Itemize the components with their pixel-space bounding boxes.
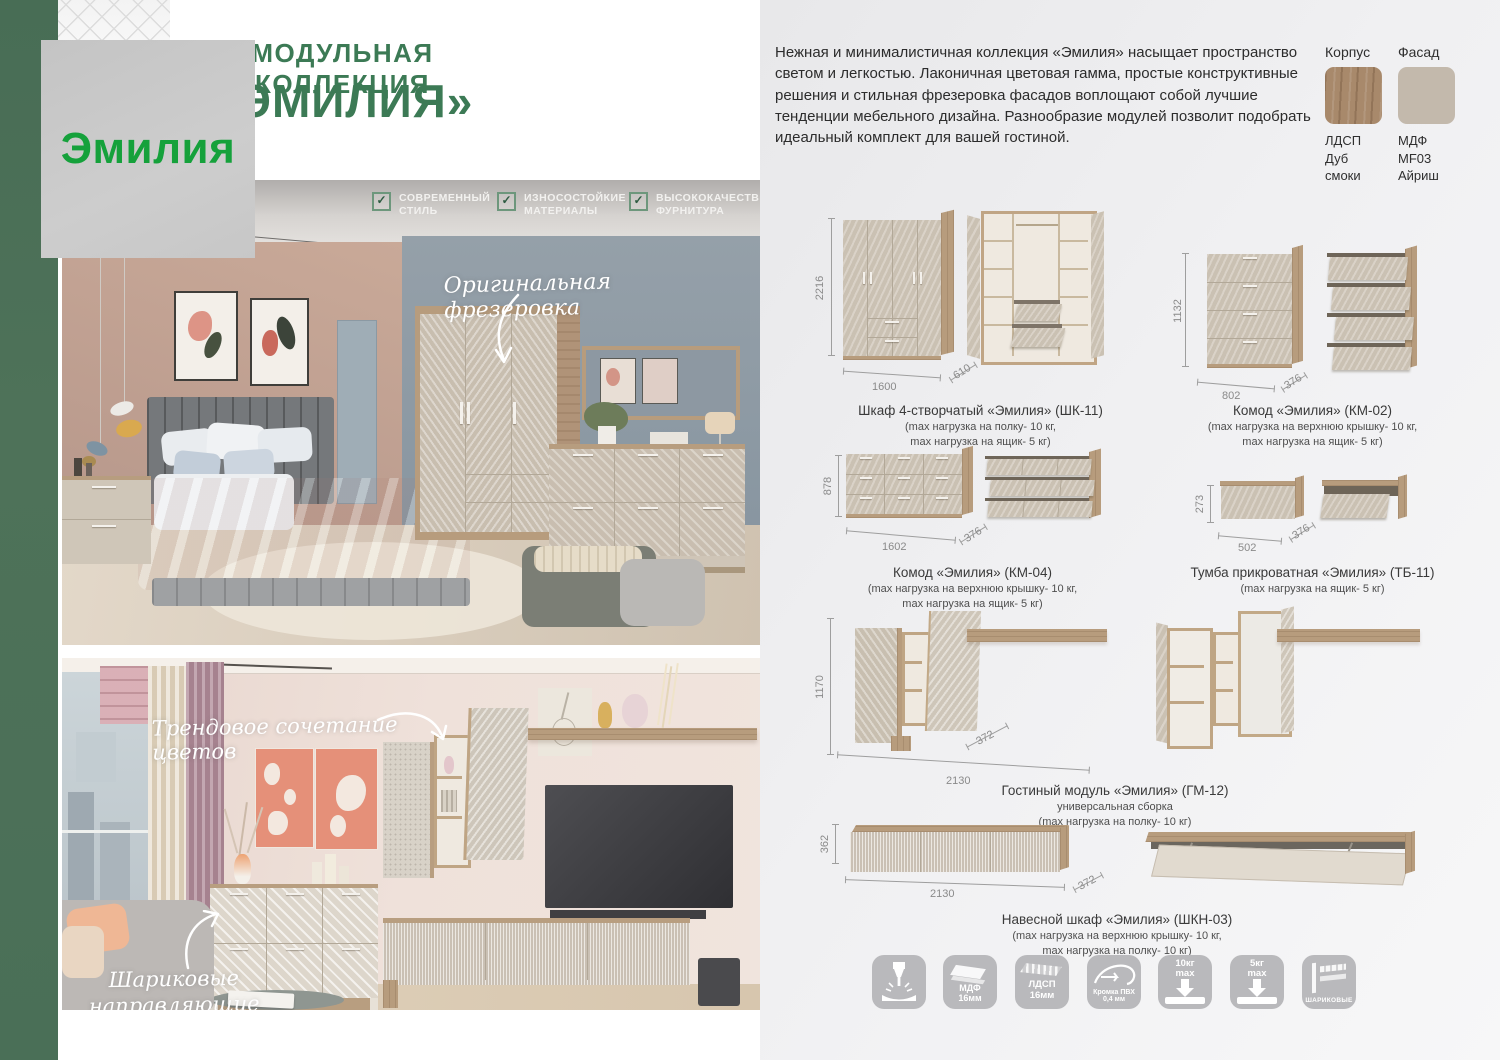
tv-screen <box>545 785 733 908</box>
brand-logo-box: Эмилия <box>41 40 255 258</box>
hanging-cabinet <box>463 708 528 860</box>
shelf-vase <box>598 702 612 728</box>
checkbox-icon: ✓ <box>372 192 391 211</box>
product-note: (max нагрузка на полку- 10 кг, max нагру… <box>818 420 1143 450</box>
badge-label: ЛДСП 16мм <box>1015 980 1069 1001</box>
poster-coral <box>315 748 378 850</box>
bed-base <box>152 578 470 606</box>
tv-bench <box>383 918 690 985</box>
product-caption: Шкаф 4-створчатый «Эмилия» (ШК-11) (max … <box>818 403 1143 450</box>
books <box>650 432 688 444</box>
bench-leg <box>383 980 398 1008</box>
pouf-light <box>620 559 705 626</box>
dim-line-height <box>835 824 836 864</box>
product-note: (max нагрузка на ящик- 5 кг) <box>1155 582 1470 597</box>
dim-line-height <box>1210 485 1211 523</box>
mdf-16-icon: МДФ 16мм <box>943 955 997 1009</box>
dim-line-height <box>1185 253 1186 367</box>
chest-drawing-open <box>1327 253 1419 373</box>
chest-side <box>962 446 973 515</box>
product-name: Гостиный модуль «Эмилия» (ГМ-12) <box>955 783 1275 798</box>
ball-slides-icon: ШАРИКОВЫЕ <box>1302 955 1356 1009</box>
product-caption: Тумба прикроватная «Эмилия» (ТБ-11) (max… <box>1155 565 1470 597</box>
wallcab-drawing-closed <box>850 823 1072 879</box>
product-name: Шкаф 4-створчатый «Эмилия» (ШК-11) <box>818 403 1143 418</box>
nightstand-items <box>86 463 92 476</box>
livingroom-annotation-bottom: Шариковые направляющие <box>74 964 275 1010</box>
feature-label: ВЫСОКОКАЧЕСТВЕ ФУРНИТУРА <box>656 192 760 217</box>
hanging-cabinet <box>383 742 434 878</box>
annotation-arrow <box>376 710 450 750</box>
dim-height: 273 <box>1194 484 1206 524</box>
product-caption: Комод «Эмилия» (КМ-04) (max нагрузка на … <box>810 565 1135 612</box>
right-panel <box>760 0 1500 1060</box>
milling-icon <box>872 955 926 1009</box>
product-name: Тумба прикроватная «Эмилия» (ТБ-11) <box>1155 565 1470 580</box>
product-caption: Комод «Эмилия» (КМ-02) (max нагрузка на … <box>1155 403 1470 450</box>
product-caption: Навесной шкаф «Эмилия» (ШКН-03) (max наг… <box>957 912 1277 959</box>
product-name: Комод «Эмилия» (КМ-04) <box>810 565 1135 580</box>
dim-width: 2130 <box>930 888 954 900</box>
table-lamp <box>700 412 740 444</box>
speaker <box>698 958 740 1006</box>
annotation-arrow <box>180 910 224 972</box>
poster <box>250 298 309 386</box>
dim-width: 802 <box>1222 390 1240 402</box>
dim-line-height <box>830 618 831 755</box>
fasad-caption: МДФ MF03 Айриш <box>1398 132 1439 185</box>
poster <box>174 291 238 381</box>
checkbox-icon: ✓ <box>497 192 516 211</box>
badge-label: Кромка ПВХ 0,4 мм <box>1087 989 1141 1004</box>
product-name: Навесной шкаф «Эмилия» (ШКН-03) <box>957 912 1277 927</box>
korpus-swatch <box>1325 67 1382 124</box>
wallcab-drawing-open <box>1147 826 1423 896</box>
livingroom-photo: Трендовое сочетание цветов Шариковые нап… <box>62 658 760 1010</box>
badge-label: 5кг max <box>1230 959 1284 980</box>
dim-line-height <box>838 455 839 517</box>
feature-materials: ✓ ИЗНОСОСТОЙКИЕ МАТЕРИАЛЫ <box>497 192 617 217</box>
wall-shelf <box>528 728 757 740</box>
korpus-caption: ЛДСП Дуб смоки <box>1325 132 1361 185</box>
chest-drawing-closed <box>846 454 962 518</box>
feature-modern-style: ✓ СОВРЕМЕННЫЙ СТИЛЬ <box>372 192 487 217</box>
brand-logo: Эмилия <box>61 124 236 174</box>
wardrobe-drawing-open <box>975 211 1101 363</box>
korpus-label: Корпус <box>1325 44 1370 60</box>
wardrobe-drawing-closed <box>843 220 941 360</box>
collection-description: Нежная и минималистичная коллекция «Эмил… <box>775 42 1320 148</box>
vase <box>234 854 251 884</box>
load-5-icon: 5кг max <box>1230 955 1284 1009</box>
chest-drawing-closed <box>1207 254 1292 368</box>
branches <box>214 800 274 860</box>
annotation-arrow <box>486 292 530 370</box>
badge-label: МДФ 16мм <box>943 984 997 1004</box>
edge-pvc-icon: Кромка ПВХ 0,4 мм <box>1087 955 1141 1009</box>
product-note: (max нагрузка на верхнюю крышку- 10 кг, … <box>1155 420 1470 450</box>
fasad-swatch <box>1398 67 1455 124</box>
nightstand-drawing-closed <box>1220 481 1298 523</box>
dim-width: 1602 <box>882 541 906 553</box>
feature-label: СОВРЕМЕННЫЙ СТИЛЬ <box>399 192 490 217</box>
dim-height: 1132 <box>1172 291 1184 331</box>
dim-line-height <box>831 218 832 356</box>
chest-drawing-open <box>985 456 1103 522</box>
plant <box>580 402 632 444</box>
dim-height: 1170 <box>814 667 826 707</box>
fasad-label: Фасад <box>1398 44 1439 60</box>
module-drawing-open <box>1165 608 1423 760</box>
decor-panel <box>538 688 592 756</box>
candles <box>312 854 352 884</box>
dim-height: 362 <box>819 824 831 864</box>
ldsp-16-icon: ЛДСП 16мм <box>1015 955 1069 1009</box>
badge-label: ШАРИКОВЫЕ <box>1302 997 1356 1004</box>
catalog-page: МОДУЛЬНАЯ КОЛЛЕКЦИЯ «ЭМИЛИЯ» <box>0 0 1500 1060</box>
feature-hardware: ✓ ВЫСОКОКАЧЕСТВЕ ФУРНИТУРА <box>629 192 754 217</box>
badge-label: 10кг max <box>1158 959 1212 980</box>
dim-height: 878 <box>822 466 834 506</box>
nightstand-drawing-open <box>1322 480 1406 524</box>
nightstand-items <box>74 458 82 476</box>
checkbox-icon: ✓ <box>629 192 648 211</box>
wardrobe-side <box>941 210 954 355</box>
shelf-vase <box>622 694 648 728</box>
load-10-icon: 10кг max <box>1158 955 1212 1009</box>
dim-height: 2216 <box>814 268 826 308</box>
dim-width: 1600 <box>872 381 896 393</box>
chest-side <box>1292 245 1303 364</box>
feature-label: ИЗНОСОСТОЙКИЕ МАТЕРИАЛЫ <box>524 192 626 217</box>
product-name: Комод «Эмилия» (КМ-02) <box>1155 403 1470 418</box>
nightstand <box>62 476 151 564</box>
dim-width: 502 <box>1238 542 1256 554</box>
door <box>337 320 377 504</box>
